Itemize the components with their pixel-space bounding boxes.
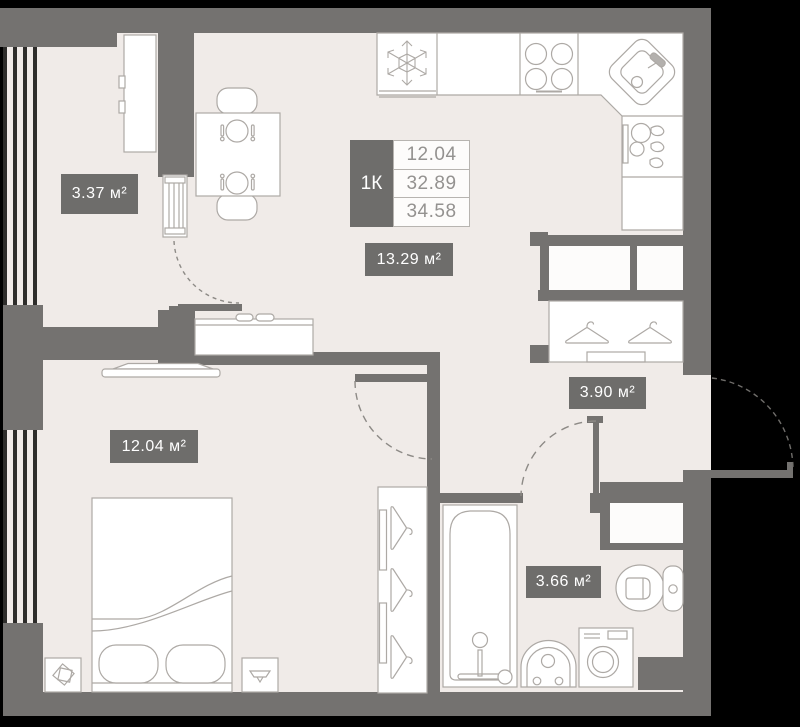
wall-top-balcony xyxy=(0,8,117,47)
wall-right-lower xyxy=(683,470,711,716)
radiator-icon xyxy=(163,175,187,237)
pillow xyxy=(166,645,225,683)
wall-bedroom-bath-divider xyxy=(427,365,440,697)
bathtub-icon xyxy=(443,505,517,687)
dining-table xyxy=(196,113,280,196)
vent-niche-right xyxy=(637,246,683,290)
unit-area-table: 12.04 32.89 34.58 xyxy=(393,140,470,227)
balcony-door-leaf xyxy=(178,304,242,311)
pillow xyxy=(99,645,158,683)
washing-machine-icon xyxy=(579,628,633,687)
toilet-icon xyxy=(616,565,683,611)
wall-left-pier xyxy=(3,305,43,430)
wall-washer-block xyxy=(638,657,687,690)
floor-plan-drawing xyxy=(0,0,800,727)
unit-type-cell: 1К xyxy=(350,140,393,227)
hallway-area-label: 3.90 м² xyxy=(580,384,635,402)
wall-balcony-divider xyxy=(158,33,194,177)
bedroom-door-leaf xyxy=(355,374,432,382)
hallway-closet xyxy=(549,301,683,362)
entrance-door-leaf xyxy=(700,470,793,478)
wash-basin-icon xyxy=(521,641,576,687)
wall-right-upper xyxy=(683,33,711,375)
balcony-cabinet xyxy=(119,35,156,152)
dresser xyxy=(195,314,313,355)
closet-niche-divider xyxy=(630,245,637,292)
balcony-door-stub xyxy=(169,306,179,315)
nightstand-left xyxy=(45,658,81,692)
wall-bathroom-top xyxy=(440,493,523,503)
unit-living-area: 12.04 xyxy=(394,141,469,170)
entrance-door-stub xyxy=(787,462,793,471)
balcony-area-label: 3.37 м² xyxy=(72,185,127,203)
closet-wall-stub xyxy=(530,345,549,363)
bed xyxy=(92,498,232,692)
unit-summary-box: 1К 12.04 32.89 34.58 xyxy=(350,140,470,227)
bedroom-area-badge: 12.04 м² xyxy=(110,430,198,463)
wall-left-pier-bottom xyxy=(3,623,43,716)
hallway-area-badge: 3.90 м² xyxy=(569,377,646,409)
bathroom-area-label: 3.66 м² xyxy=(536,573,591,591)
chair-top xyxy=(217,88,257,114)
bedroom-area-label: 12.04 м² xyxy=(122,438,187,456)
kitchen-living-area-badge: 13.29 м² xyxy=(365,243,453,276)
unit-total-area: 34.58 xyxy=(394,198,469,226)
bathroom-area-badge: 3.66 м² xyxy=(526,566,601,598)
entrance-door-arc xyxy=(712,378,793,469)
closet-wall-left xyxy=(540,235,549,295)
nightstand-right xyxy=(242,658,278,692)
wall-bottom xyxy=(3,692,711,716)
bathroom-door-leaf xyxy=(593,420,599,497)
wall-bedroom-left xyxy=(40,327,158,360)
chair-bottom xyxy=(217,194,257,220)
toilet-niche xyxy=(610,503,683,543)
kitchen-living-area-label: 13.29 м² xyxy=(377,251,442,269)
unit-type-label: 1К xyxy=(361,173,383,195)
unit-usable-area: 32.89 xyxy=(394,170,469,199)
floor-plan: 3.37 м² 13.29 м² 12.04 м² 3.90 м² 3.66 м… xyxy=(0,0,800,727)
wall-bedroom-block xyxy=(158,310,195,365)
vent-niche-left xyxy=(549,246,630,290)
closet-wall-bottom xyxy=(538,290,683,301)
closet-wall-top xyxy=(532,235,683,246)
balcony-area-badge: 3.37 м² xyxy=(61,174,138,214)
